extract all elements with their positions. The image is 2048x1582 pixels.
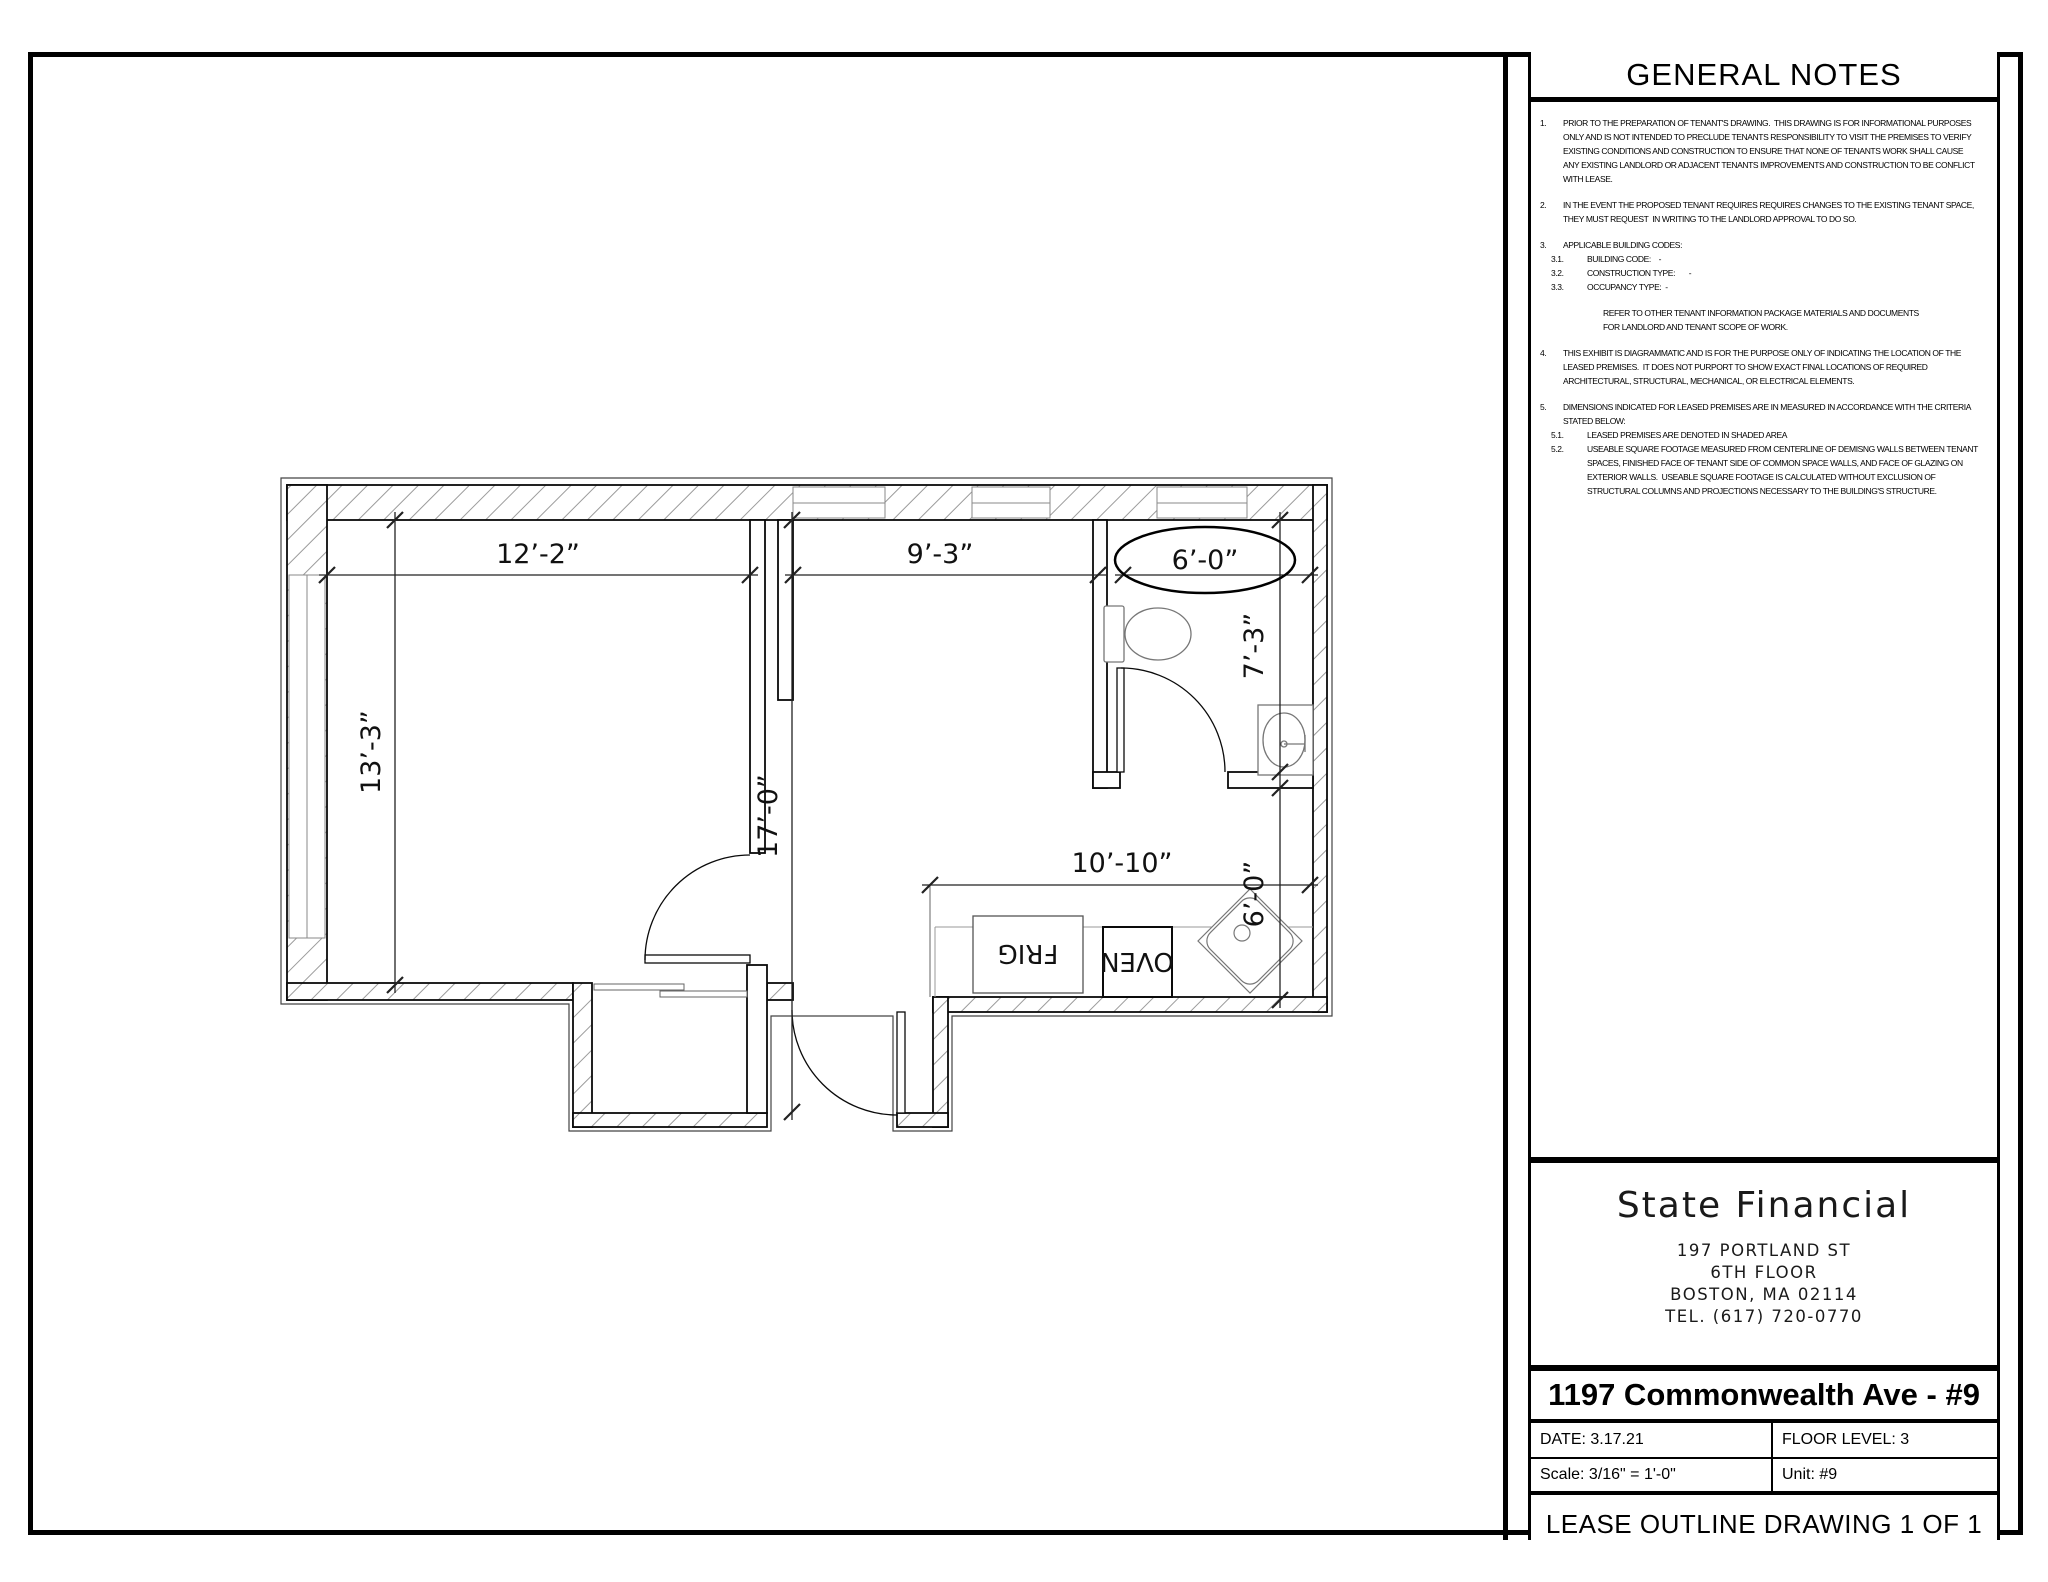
subnote-number: 5.1. bbox=[1551, 428, 1587, 442]
subnote-text: OCCUPANCY TYPE: - bbox=[1587, 280, 1987, 294]
company-address: 197 PORTLAND ST 6TH FLOOR BOSTON, MA 021… bbox=[1531, 1240, 1997, 1328]
info-row-2: Scale: 3/16" = 1'-0" Unit: #9 bbox=[1531, 1459, 1997, 1495]
general-notes-header: GENERAL NOTES bbox=[1531, 52, 1997, 102]
subnote-text: USEABLE SQUARE FOOTAGE MEASURED FROM CEN… bbox=[1587, 442, 1987, 498]
bedroom-door-leaf bbox=[645, 955, 750, 963]
interior-partitions bbox=[747, 520, 1313, 1113]
oven-label: OVEN bbox=[1100, 946, 1174, 976]
subnote-text: CONSTRUCTION TYPE: - bbox=[1587, 266, 1987, 280]
note-5-1: 5.1. LEASED PREMISES ARE DENOTED IN SHAD… bbox=[1551, 428, 1987, 442]
scale-cell: Scale: 3/16" = 1'-0" bbox=[1531, 1459, 1773, 1491]
bathroom-fixtures bbox=[1104, 606, 1313, 775]
dimensions bbox=[319, 512, 1318, 1120]
note-3-1: 3.1. BUILDING CODE: - bbox=[1551, 252, 1987, 266]
note-3: 3. APPLICABLE BUILDING CODES: 3.1. BUILD… bbox=[1537, 238, 1987, 334]
date-cell: DATE: 3.17.21 bbox=[1531, 1423, 1773, 1457]
bath-door-leaf bbox=[1117, 668, 1124, 772]
company-name: State Financial bbox=[1531, 1185, 1997, 1226]
subnote-text: LEASED PREMISES ARE DENOTED IN SHADED AR… bbox=[1587, 428, 1987, 442]
sheet-name: LEASE OUTLINE DRAWING 1 OF 1 bbox=[1546, 1509, 1982, 1540]
dim-living-height: 13’-3” bbox=[356, 710, 387, 794]
note-text: APPLICABLE BUILDING CODES: bbox=[1563, 238, 1987, 252]
note-number: 3. bbox=[1537, 238, 1563, 252]
subnote-number: 5.2. bbox=[1551, 442, 1587, 498]
subnote-number: 3.2. bbox=[1551, 266, 1587, 280]
toilet-tank bbox=[1104, 606, 1124, 662]
note-text: THIS EXHIBIT IS DIAGRAMMATIC AND IS FOR … bbox=[1563, 346, 1987, 388]
dim-kitchen-width: 10’-10” bbox=[1071, 848, 1172, 879]
note-2: 2. IN THE EVENT THE PROPOSED TENANT REQU… bbox=[1537, 198, 1987, 226]
general-notes-body: 1. PRIOR TO THE PREPARATION OF TENANT'S … bbox=[1531, 102, 1997, 1163]
dim-mid-width: 9’-3” bbox=[907, 539, 974, 570]
general-notes-title: GENERAL NOTES bbox=[1626, 57, 1901, 93]
dim-kitchen-depth: 6’-0” bbox=[1239, 861, 1270, 928]
note-5-2: 5.2. USEABLE SQUARE FOOTAGE MEASURED FRO… bbox=[1551, 442, 1987, 498]
project-title: 1197 Commonwealth Ave - #9 bbox=[1548, 1377, 1980, 1413]
floor-level-cell: FLOOR LEVEL: 3 bbox=[1773, 1423, 1997, 1457]
dim-bath-depth: 7’-3” bbox=[1239, 613, 1270, 680]
drawing-sheet: { "drawing": { "general_notes": { "title… bbox=[0, 0, 2048, 1582]
note-number: 4. bbox=[1537, 346, 1563, 388]
subnote-number: 3.1. bbox=[1551, 252, 1587, 266]
project-title-row: 1197 Commonwealth Ave - #9 bbox=[1531, 1371, 1997, 1423]
note-text: IN THE EVENT THE PROPOSED TENANT REQUIRE… bbox=[1563, 198, 1987, 226]
bath-door-swing bbox=[1121, 668, 1225, 772]
dim-overall-depth: 17’-0” bbox=[753, 774, 784, 858]
address-line: BOSTON, MA 02114 bbox=[1531, 1284, 1997, 1306]
entry-door-swing bbox=[792, 1010, 897, 1115]
unit-cell: Unit: #9 bbox=[1773, 1459, 1997, 1491]
sink-basin bbox=[1263, 713, 1305, 767]
info-row-1: DATE: 3.17.21 FLOOR LEVEL: 3 bbox=[1531, 1423, 1997, 1459]
dim-living-width: 12’-2” bbox=[496, 539, 580, 570]
floor-plan-svg: FRIG OVEN 12’-2” 9’-3” 6’-0” 13’-3” bbox=[230, 430, 1410, 1190]
title-panel: GENERAL NOTES 1. PRIOR TO THE PREPARATIO… bbox=[1528, 52, 2000, 1540]
note-3-2: 3.2. CONSTRUCTION TYPE: - bbox=[1551, 266, 1987, 280]
sheet-name-row: LEASE OUTLINE DRAWING 1 OF 1 bbox=[1531, 1495, 1997, 1553]
note-text: DIMENSIONS INDICATED FOR LEASED PREMISES… bbox=[1563, 400, 1987, 428]
exterior-walls bbox=[287, 485, 1327, 1127]
bedroom-door-swing bbox=[645, 855, 750, 960]
dim-bath-width: 6’-0” bbox=[1172, 545, 1239, 576]
note-3-extra: REFER TO OTHER TENANT INFORMATION PACKAG… bbox=[1603, 306, 1987, 334]
note-text: PRIOR TO THE PREPARATION OF TENANT'S DRA… bbox=[1563, 116, 1987, 186]
subnote-text: BUILDING CODE: - bbox=[1587, 252, 1987, 266]
subnote-number: 3.3. bbox=[1551, 280, 1587, 294]
company-block: State Financial 197 PORTLAND ST 6TH FLOO… bbox=[1531, 1185, 1997, 1371]
entry-door-leaf bbox=[897, 1012, 905, 1113]
title-panel-divider bbox=[1503, 52, 1508, 1540]
note-4: 4. THIS EXHIBIT IS DIAGRAMMATIC AND IS F… bbox=[1537, 346, 1987, 388]
note-number: 5. bbox=[1537, 400, 1563, 428]
closet-sliding-doors bbox=[594, 984, 747, 997]
dimension-labels: 12’-2” 9’-3” 6’-0” 13’-3” 17’-0” 7’-3” 1… bbox=[356, 539, 1270, 927]
note-number: 2. bbox=[1537, 198, 1563, 226]
note-number: 1. bbox=[1537, 116, 1563, 186]
address-line: 6TH FLOOR bbox=[1531, 1262, 1997, 1284]
toilet-bowl bbox=[1125, 608, 1191, 660]
address-line: TEL. (617) 720-0770 bbox=[1531, 1306, 1997, 1328]
floor-plan: FRIG OVEN 12’-2” 9’-3” 6’-0” 13’-3” bbox=[230, 430, 1410, 1190]
note-1: 1. PRIOR TO THE PREPARATION OF TENANT'S … bbox=[1537, 116, 1987, 186]
note-3-3: 3.3. OCCUPANCY TYPE: - bbox=[1551, 280, 1987, 294]
note-5: 5. DIMENSIONS INDICATED FOR LEASED PREMI… bbox=[1537, 400, 1987, 498]
address-line: 197 PORTLAND ST bbox=[1531, 1240, 1997, 1262]
fridge-label: FRIG bbox=[998, 938, 1059, 968]
